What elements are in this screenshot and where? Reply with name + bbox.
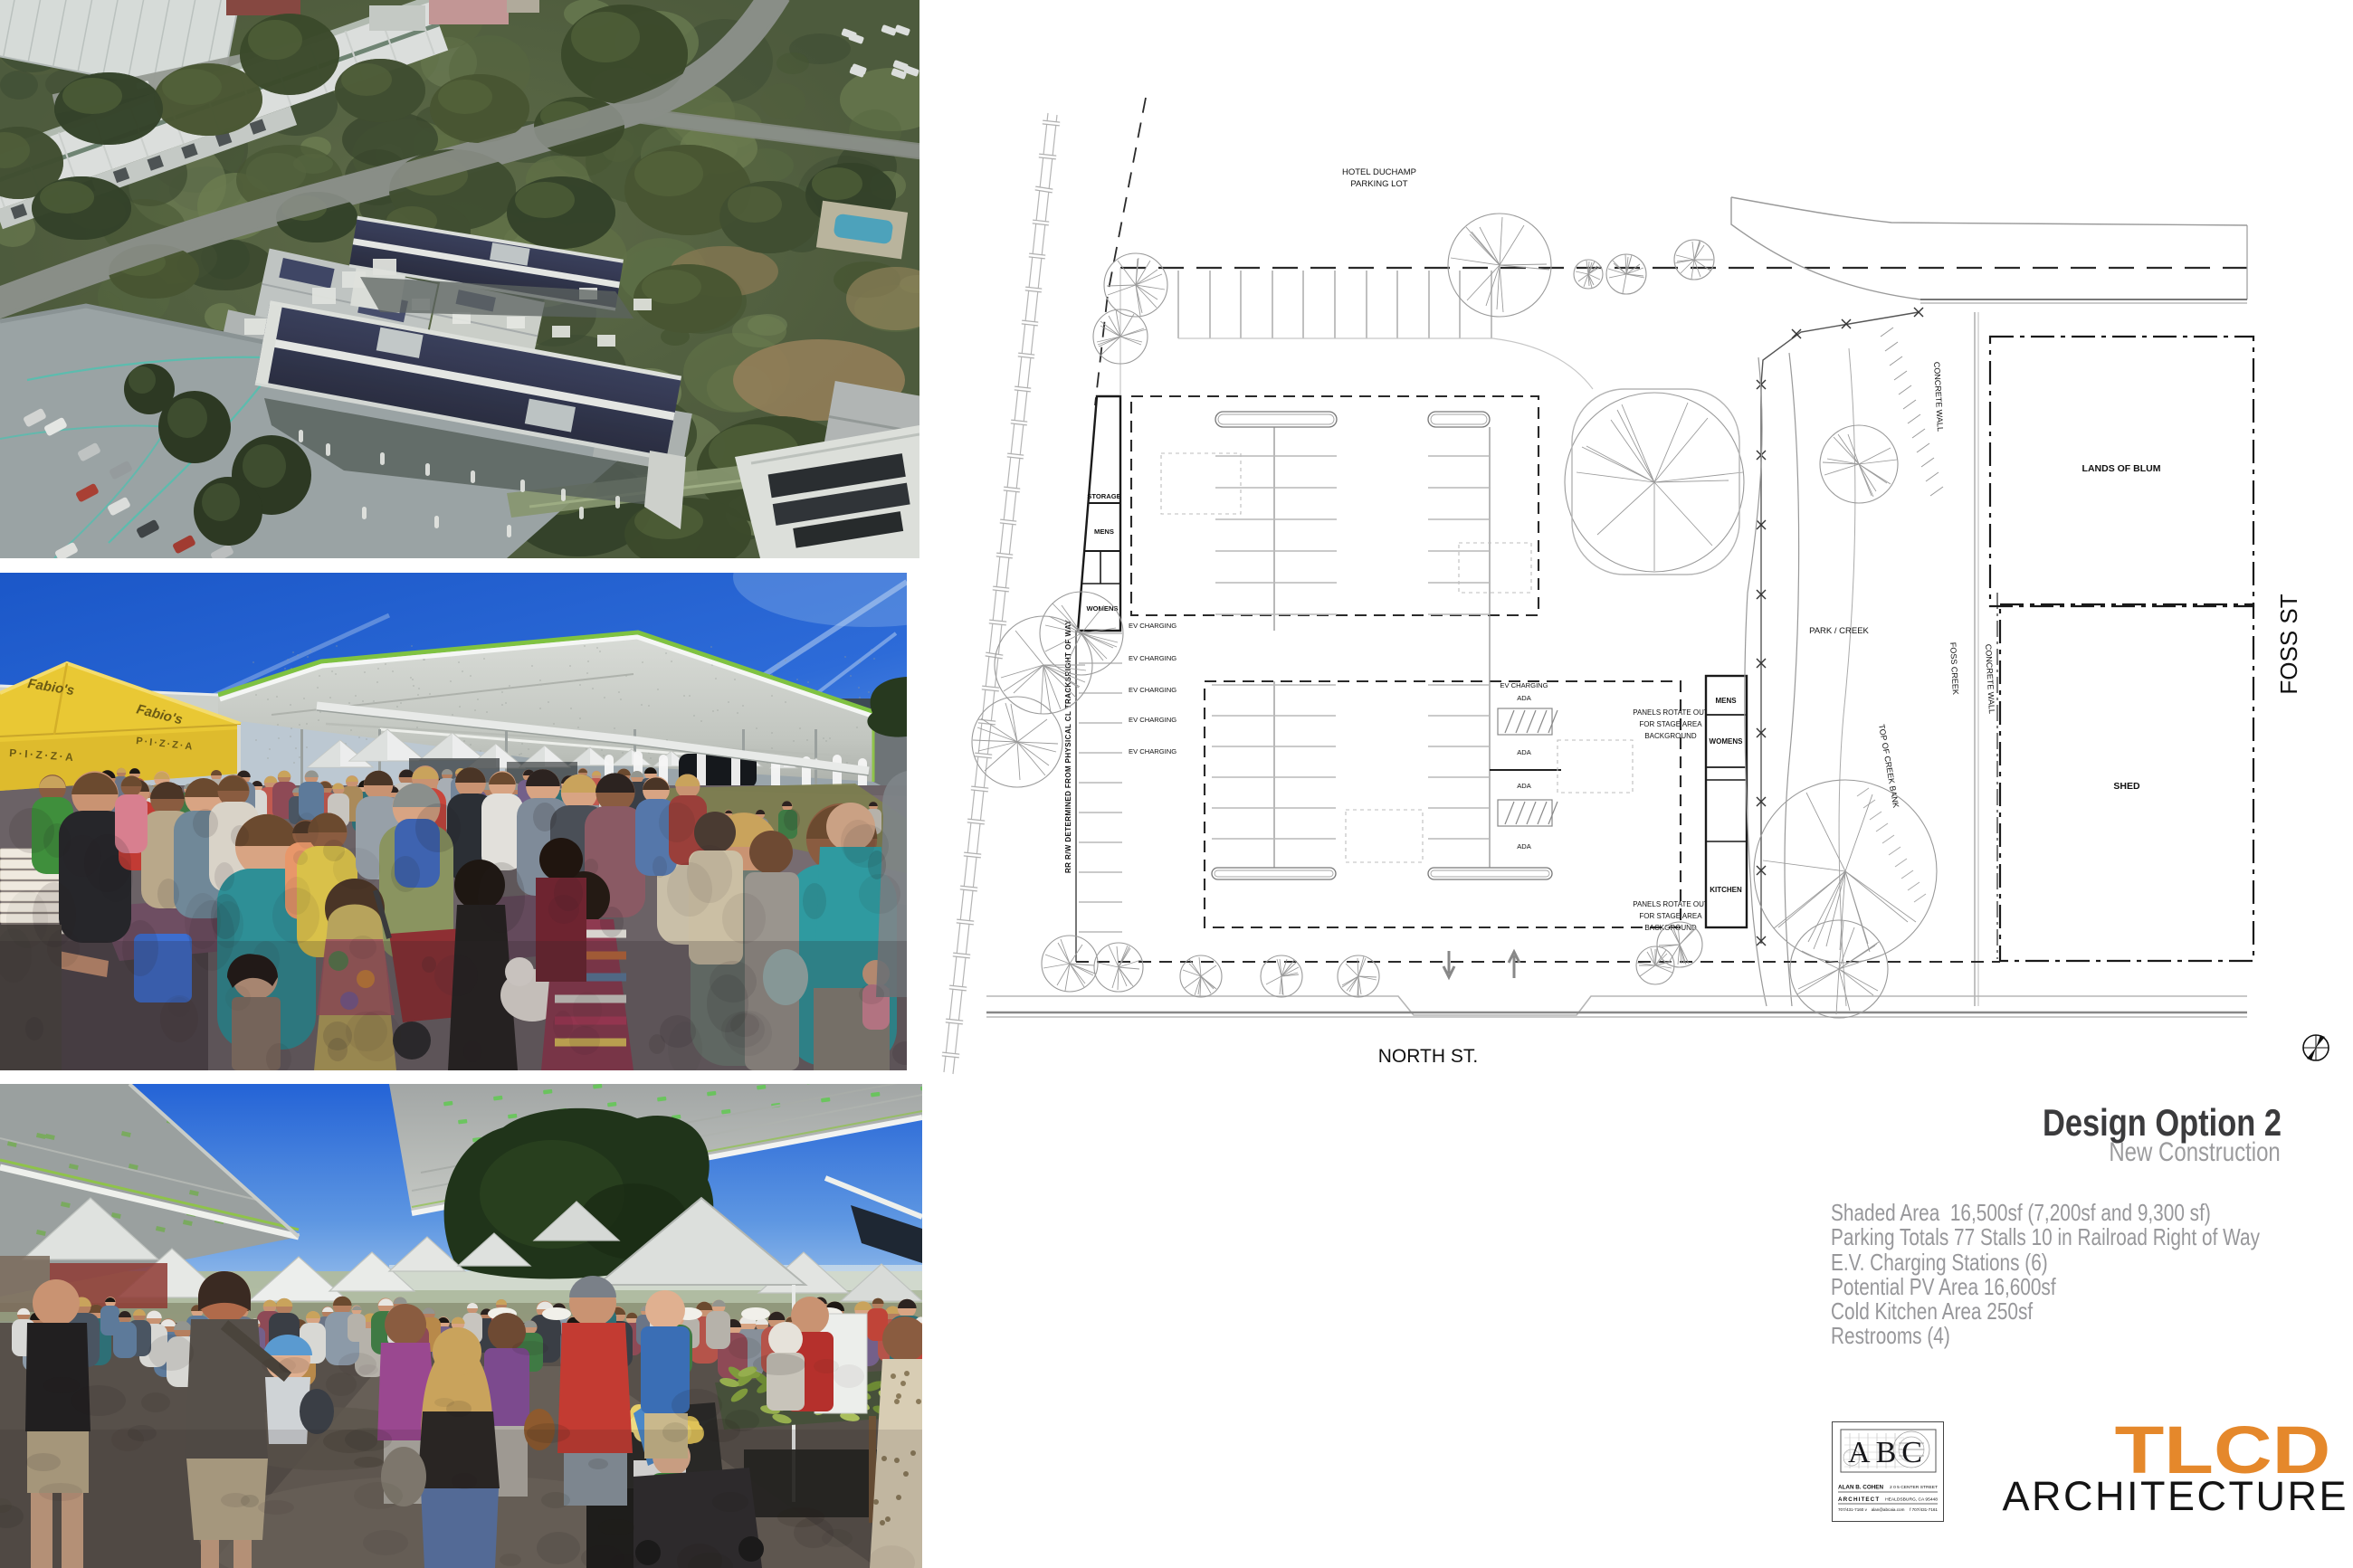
svg-text:WOMENS: WOMENS (1710, 737, 1744, 746)
svg-text:BACKGROUND: BACKGROUND (1644, 732, 1697, 740)
svg-text:MENS: MENS (1094, 527, 1114, 536)
svg-text:MENS: MENS (1715, 697, 1737, 705)
svg-text:PANELS ROTATE OUT: PANELS ROTATE OUT (1633, 708, 1709, 717)
svg-text:alan@abcaia.com: alan@abcaia.com (1872, 1507, 1905, 1512)
svg-text:EV CHARGING: EV CHARGING (1129, 654, 1176, 662)
svg-text:HOTEL DUCHAMP: HOTEL DUCHAMP (1342, 167, 1416, 177)
svg-text:CONCRETE WALL: CONCRETE WALL (1932, 362, 1945, 432)
svg-text:STORAGE: STORAGE (1087, 492, 1120, 500)
svg-text:EV CHARGING: EV CHARGING (1129, 716, 1176, 724)
svg-text:EV CHARGING: EV CHARGING (1500, 681, 1548, 689)
svg-text:WOMENS: WOMENS (1086, 604, 1118, 613)
svg-text:ABC: ABC (1848, 1436, 1928, 1469)
svg-text:ALAN B. COHEN: ALAN B. COHEN (1838, 1485, 1883, 1491)
svg-text:ADA: ADA (1517, 782, 1532, 790)
svg-text:CONCRETE WALL: CONCRETE WALL (1984, 644, 1996, 715)
svg-text:KITCHEN: KITCHEN (1710, 886, 1742, 894)
svg-text:EV CHARGING: EV CHARGING (1129, 686, 1176, 694)
svg-text:PANELS ROTATE OUT: PANELS ROTATE OUT (1633, 900, 1709, 908)
svg-text:PARKING LOT: PARKING LOT (1350, 179, 1407, 189)
svg-text:707/431-7160 v: 707/431-7160 v (1838, 1507, 1868, 1512)
svg-text:FOSS ST: FOSS ST (2275, 594, 2302, 694)
svg-text:LANDS OF BLUM: LANDS OF BLUM (2082, 463, 2161, 474)
svg-text:RR R/W DETERMINED FROM PHYSICA: RR R/W DETERMINED FROM PHYSICAL CL TRACK… (1064, 620, 1072, 873)
svg-text:ADA: ADA (1517, 842, 1532, 851)
svg-text:NORTH ST.: NORTH ST. (1378, 1046, 1478, 1067)
svg-text:EV CHARGING: EV CHARGING (1129, 747, 1176, 755)
svg-text:2 0 5 CENTER STREET: 2 0 5 CENTER STREET (1890, 1485, 1938, 1490)
svg-text:FOR STAGE AREA: FOR STAGE AREA (1639, 720, 1702, 728)
svg-text:EV CHARGING: EV CHARGING (1129, 622, 1176, 630)
svg-text:SHED: SHED (2113, 781, 2140, 792)
svg-text:ADA: ADA (1517, 694, 1532, 702)
svg-text:FOR STAGE AREA: FOR STAGE AREA (1639, 912, 1702, 920)
svg-text:ADA: ADA (1517, 748, 1532, 756)
svg-text:HEALDSBURG, CA 95448: HEALDSBURG, CA 95448 (1885, 1497, 1938, 1503)
svg-text:PARK / CREEK: PARK / CREEK (1809, 626, 1869, 636)
svg-text:FOSS CREEK: FOSS CREEK (1948, 642, 1960, 695)
svg-text:f 707/431-7161: f 707/431-7161 (1910, 1507, 1938, 1512)
svg-text:ARCHITECT: ARCHITECT (1838, 1497, 1880, 1503)
